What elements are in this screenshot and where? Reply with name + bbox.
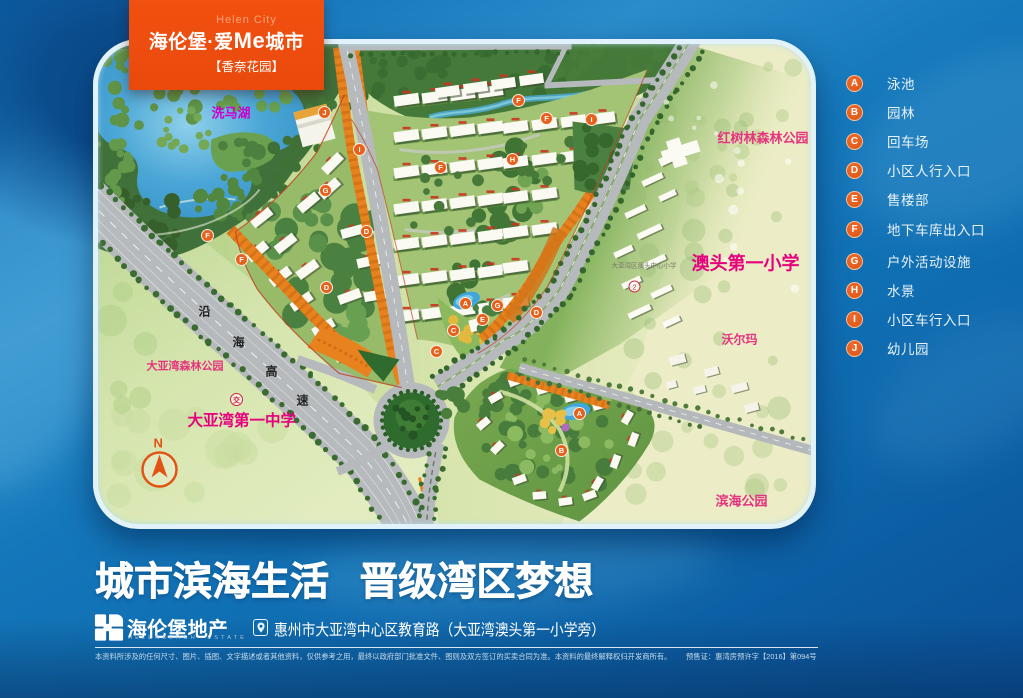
svg-text:大亚湾第一中学: 大亚湾第一中学 bbox=[188, 411, 297, 430]
svg-text:J: J bbox=[322, 108, 326, 117]
svg-text:洗马湖: 洗马湖 bbox=[212, 106, 251, 121]
svg-text:E: E bbox=[480, 315, 485, 324]
svg-text:F: F bbox=[544, 114, 549, 123]
svg-text:红树林森林公园: 红树林森林公园 bbox=[718, 131, 809, 146]
svg-text:海: 海 bbox=[233, 335, 245, 350]
svg-text:A: A bbox=[463, 299, 469, 308]
svg-text:D: D bbox=[324, 283, 330, 292]
svg-text:大亚湾森林公园: 大亚湾森林公园 bbox=[147, 359, 224, 373]
svg-text:I: I bbox=[590, 115, 592, 124]
svg-text:C: C bbox=[434, 347, 440, 356]
svg-text:I: I bbox=[358, 145, 360, 154]
svg-text:高: 高 bbox=[266, 364, 278, 379]
svg-text:F: F bbox=[516, 96, 521, 105]
svg-text:滨海公园: 滨海公园 bbox=[716, 494, 768, 509]
svg-text:N: N bbox=[154, 436, 163, 451]
svg-text:沿: 沿 bbox=[198, 305, 211, 319]
svg-text:F: F bbox=[239, 255, 244, 264]
svg-text:大亚湾区澳头中心小学: 大亚湾区澳头中心小学 bbox=[612, 261, 678, 270]
svg-text:2: 2 bbox=[633, 285, 637, 292]
svg-text:G: G bbox=[495, 301, 501, 310]
svg-text:交: 交 bbox=[233, 396, 241, 405]
svg-text:A: A bbox=[577, 409, 583, 418]
svg-text:H: H bbox=[510, 155, 515, 164]
svg-text:沃尔玛: 沃尔玛 bbox=[722, 332, 758, 347]
svg-text:F: F bbox=[438, 163, 443, 172]
svg-text:B: B bbox=[559, 446, 565, 455]
svg-text:F: F bbox=[205, 231, 210, 240]
svg-text:D: D bbox=[534, 308, 540, 317]
svg-text:D: D bbox=[364, 227, 370, 236]
svg-text:G: G bbox=[323, 186, 329, 195]
svg-text:速: 速 bbox=[297, 393, 309, 408]
svg-text:澳头第一小学: 澳头第一小学 bbox=[692, 253, 800, 274]
svg-text:C: C bbox=[451, 326, 457, 335]
